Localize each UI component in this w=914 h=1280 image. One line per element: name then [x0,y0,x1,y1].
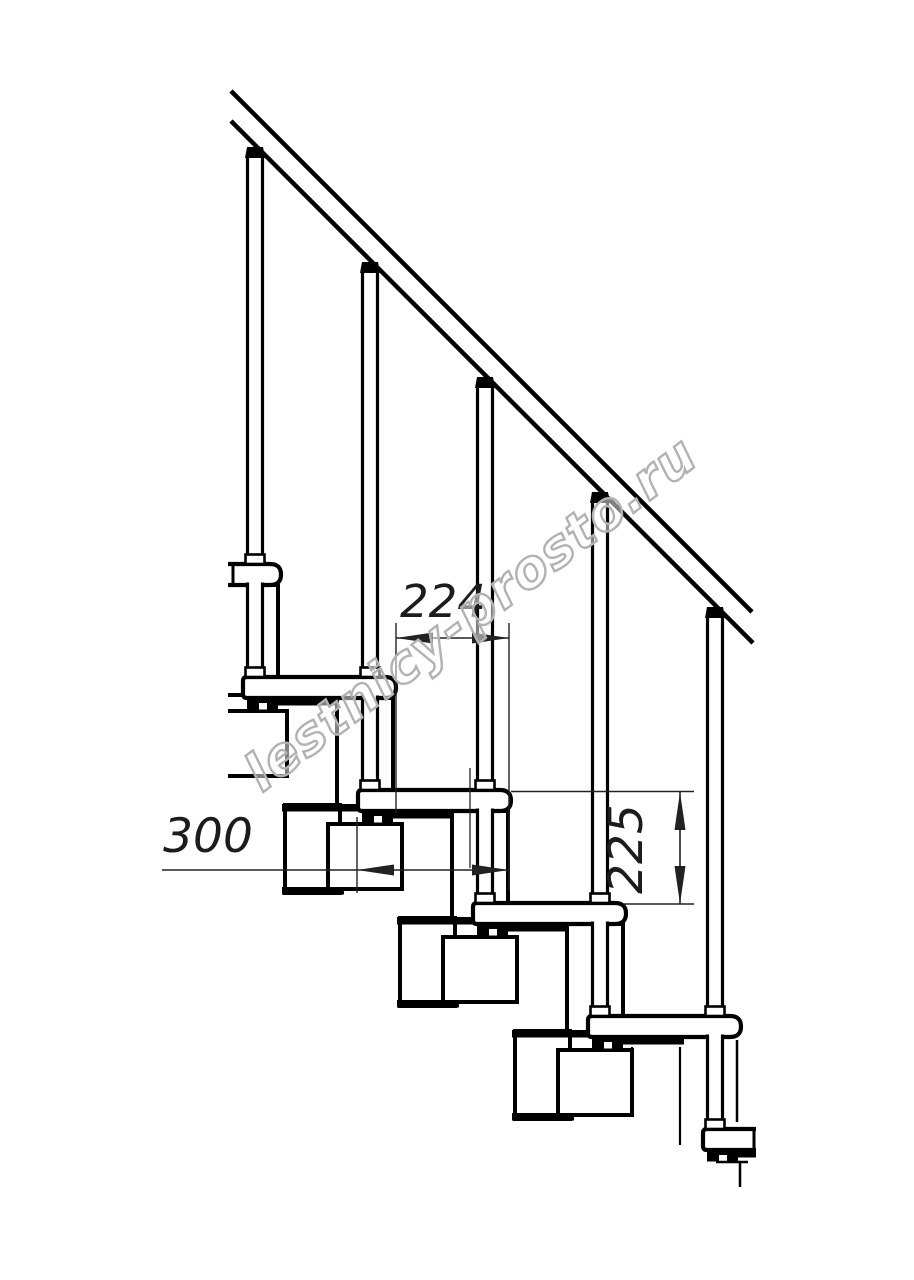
back-module-top-band-2 [397,917,478,925]
baluster-tube [248,158,263,555]
clamp-notch-4 [604,1042,612,1049]
tread-4 [588,1016,741,1037]
baluster-collar-anchor-2 [361,781,380,791]
clamp-notch-3 [489,929,497,936]
baluster-cap-3 [475,377,495,388]
tread-clamp-0 [132,585,163,597]
front-module-box-3 [558,1050,632,1115]
back-module-top-band-1 [282,804,363,812]
baluster-5 [706,618,725,1129]
baluster-tube [708,618,723,1007]
baluster-cap-1 [245,147,265,158]
tread-5 [703,1129,856,1150]
tread-clamp-band-0 [161,585,224,593]
baluster-1 [246,158,265,677]
baluster-cap-5 [705,607,725,618]
baluster-collar-anchor-5 [706,1120,725,1130]
dimension-arrow [675,866,686,904]
tread-clamp-band-5 [736,1150,799,1158]
tread-clamp-band-4 [621,1037,684,1045]
tread-0 [128,564,281,585]
baluster-collar-upper-4 [591,894,610,904]
baluster-collar-upper-1 [246,555,265,565]
baluster-tube [708,1035,723,1121]
staircase-drawing: 224 300 225 lestnicy-prosto.ru [0,0,914,1280]
watermark-text: lestnicy-prosto.ru [234,425,709,804]
dimension-label-tread-depth: 300 [163,809,253,864]
tread-3 [473,903,626,924]
baluster-collar-upper-5 [706,1007,725,1017]
tread-2 [358,790,511,811]
baluster-collar-anchor-1 [246,668,265,678]
back-module-top-band-3 [512,1030,593,1038]
clamp-notch-5 [719,1155,727,1162]
tread-clamp-band-3 [506,924,569,932]
clamp-notch-0 [144,590,152,597]
baluster-4 [591,503,610,1016]
staircase-drawing-page: 224 300 225 lestnicy-prosto.ru [0,0,914,1280]
baluster-collar-upper-3 [476,781,495,791]
tread-clamp-band-2 [391,811,454,819]
dimension-arrow [675,792,686,830]
dimension-label-rise: 225 [599,804,654,894]
baluster-tube [478,809,493,895]
clamp-notch-2 [374,816,382,823]
baluster-tube [248,583,263,669]
baluster-tube [593,922,608,1008]
front-module-box-2 [443,937,517,1002]
baluster-cap-2 [360,262,380,273]
baluster-collar-anchor-3 [476,894,495,904]
front-module-box-1 [328,824,402,889]
baluster-collar-anchor-4 [591,1007,610,1017]
baluster-tube [363,273,378,668]
clamp-notch-1 [259,703,267,710]
